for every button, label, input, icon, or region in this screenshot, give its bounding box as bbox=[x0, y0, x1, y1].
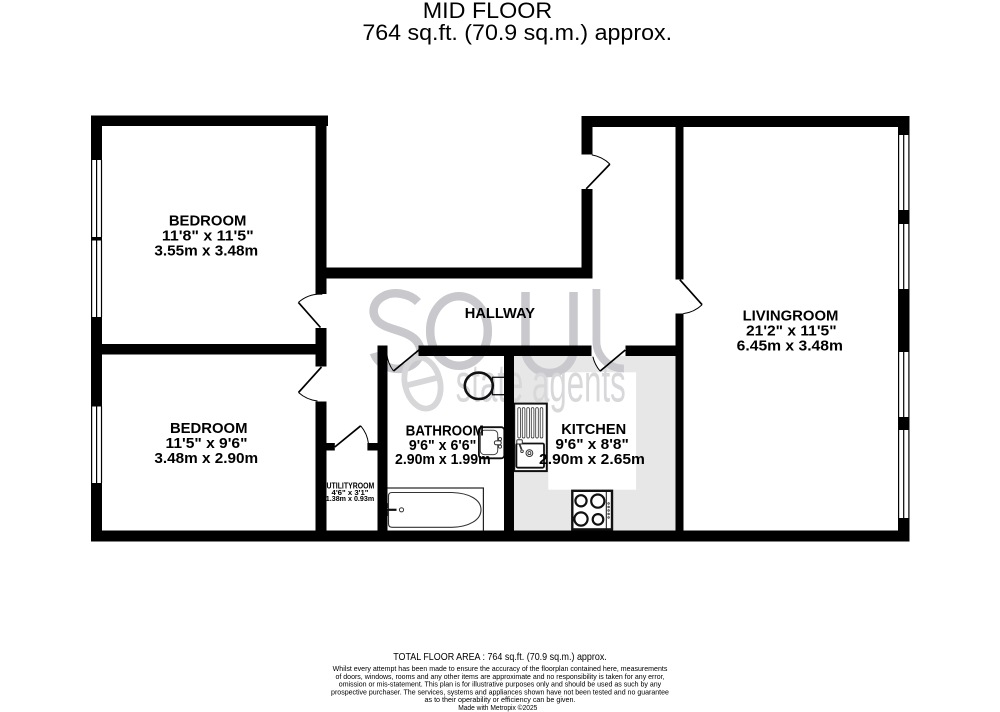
svg-text:UTILITYROOM: UTILITYROOM bbox=[327, 480, 375, 490]
svg-text:3.55m x 3.48m: 3.55m x 3.48m bbox=[154, 243, 258, 260]
svg-text:TOTAL FLOOR AREA : 764 sq.ft.: TOTAL FLOOR AREA : 764 sq.ft. (70.9 sq.m… bbox=[393, 652, 607, 663]
svg-text:764 sq.ft. (70.9 sq.m.) approx: 764 sq.ft. (70.9 sq.m.) approx. bbox=[362, 20, 672, 45]
svg-text:3.48m x 2.90m: 3.48m x 2.90m bbox=[154, 450, 258, 467]
svg-text:2.90m x 2.65m: 2.90m x 2.65m bbox=[539, 451, 645, 468]
svg-text:1.38m x 0.93m: 1.38m x 0.93m bbox=[326, 496, 374, 503]
svg-text:HALLWAY: HALLWAY bbox=[465, 305, 535, 322]
svg-text:Made with Metropix ©2025: Made with Metropix ©2025 bbox=[458, 703, 537, 712]
svg-text:2.90m x 1.99m: 2.90m x 1.99m bbox=[395, 451, 491, 468]
svg-text:6.45m x 3.48m: 6.45m x 3.48m bbox=[737, 338, 843, 355]
